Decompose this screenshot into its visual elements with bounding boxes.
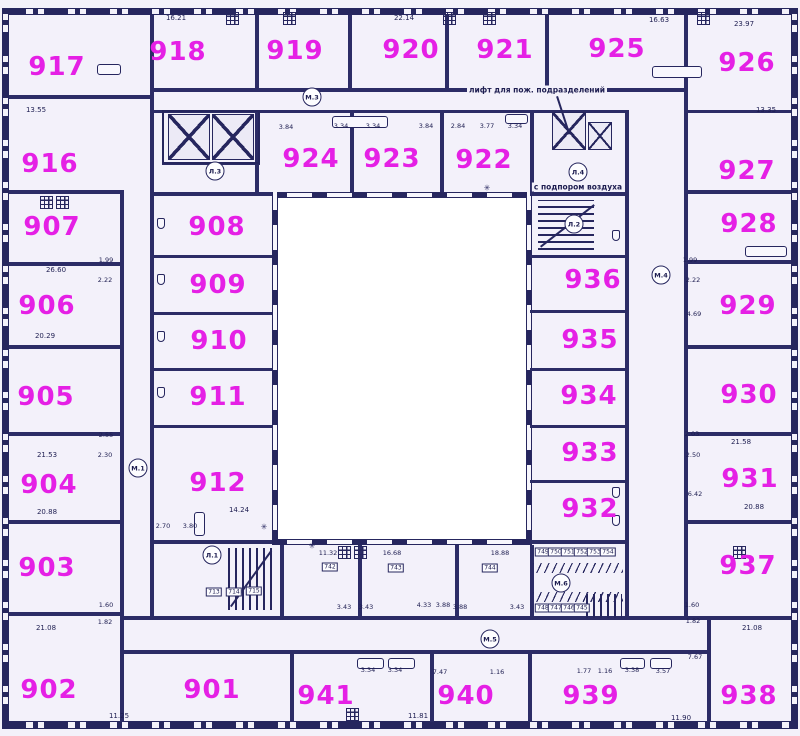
wall: [530, 192, 625, 196]
area-label: 21.58: [731, 438, 751, 446]
elevator-shaft: [168, 114, 210, 160]
wall: [150, 425, 272, 428]
wall: [684, 520, 791, 524]
wall: [530, 310, 625, 313]
wall: [150, 192, 272, 196]
area-label: 16.21: [166, 14, 186, 22]
room-number-908: 908: [188, 212, 245, 242]
room-number-916: 916: [21, 149, 78, 179]
wall: [530, 540, 625, 544]
dimension-label: 1.99: [99, 256, 113, 264]
room-number-920: 920: [382, 35, 439, 65]
asterisk-symbol: ✳: [484, 184, 491, 193]
wall: [9, 612, 120, 616]
dimension-label: 6.42: [688, 490, 702, 498]
room-number-935: 935: [561, 325, 618, 355]
room-number-941: 941: [297, 681, 354, 711]
unit-plaque-742: 742: [322, 563, 338, 572]
wall: [9, 95, 150, 99]
room-number-929: 929: [719, 291, 776, 321]
dimension-label: 1.16: [598, 667, 612, 675]
dimension-label: 2.84: [451, 122, 465, 130]
area-label: 16.63: [649, 16, 669, 24]
dimension-label: 1.60: [685, 601, 699, 609]
wall: [430, 650, 434, 722]
dimension-label: 2.22: [98, 276, 112, 284]
wall: [530, 545, 534, 616]
area-label: 11.25: [109, 712, 129, 720]
dimension-label: 3.34: [388, 666, 402, 674]
room-number-909: 909: [189, 270, 246, 300]
wall: [530, 480, 625, 483]
room-number-906: 906: [18, 291, 75, 321]
outer-wall: [791, 8, 798, 728]
marker-М.4: М.4: [652, 266, 671, 285]
dimension-label: 11.32: [319, 549, 338, 557]
wall: [348, 15, 352, 88]
dimension-label: 3.43: [337, 603, 351, 611]
dimension-label: 18.88: [491, 549, 510, 557]
room-number-919: 919: [266, 36, 323, 66]
dimension-label: 1.82: [686, 617, 700, 625]
wall: [707, 616, 711, 722]
dimension-label: 3.34: [334, 122, 348, 130]
area-label: 14.24: [229, 506, 249, 514]
marker-Л.3: Л.3: [206, 162, 225, 181]
area-label: 11.81: [408, 712, 428, 720]
room-number-922: 922: [455, 145, 512, 175]
wall: [255, 15, 259, 88]
dimension-label: 7.47: [433, 668, 447, 676]
dimension-label: 3.34: [508, 122, 522, 130]
wall: [150, 368, 272, 371]
wall: [9, 520, 120, 524]
asterisk-symbol: ✳: [261, 523, 268, 532]
unit-plaque-715: 715: [246, 587, 262, 596]
courtyard-wall: [272, 192, 278, 545]
marker-Л.4: Л.4: [569, 163, 588, 182]
vent-grid: [483, 12, 496, 25]
dimension-label: 3.43: [359, 603, 373, 611]
room-number-911: 911: [189, 382, 246, 412]
inner-courtyard: [278, 198, 526, 539]
toilet: [612, 230, 620, 241]
dimension-label: 3.43: [510, 603, 524, 611]
dimension-label: 3.88: [453, 603, 467, 611]
room-number-917: 917: [28, 52, 85, 82]
vent-grid: [354, 546, 367, 559]
room-number-939: 939: [562, 681, 619, 711]
dimension-label: 3.57: [656, 667, 670, 675]
wall: [530, 368, 625, 371]
wall: [280, 545, 284, 616]
wall: [684, 260, 791, 264]
wall: [9, 190, 120, 194]
room-number-910: 910: [190, 326, 247, 356]
wall: [528, 650, 532, 722]
vent-grid: [283, 12, 296, 25]
elevator-shaft: [588, 122, 612, 150]
room-number-934: 934: [560, 381, 617, 411]
room-number-927: 927: [718, 156, 775, 186]
dimension-label: 2.50: [686, 451, 700, 459]
room-number-905: 905: [17, 382, 74, 412]
dimension-label: 3.84: [419, 122, 433, 130]
room-number-921: 921: [476, 35, 533, 65]
wall: [150, 255, 272, 258]
unit-plaque-743: 743: [388, 564, 404, 573]
dimension-label: 7.67: [688, 653, 702, 661]
room-number-932: 932: [561, 494, 618, 524]
dimension-label: 1.77: [577, 667, 591, 675]
fire-elevator-annotation: лифт для пож. подразделений: [467, 86, 607, 95]
marker-М.5: М.5: [481, 630, 500, 649]
wall: [545, 15, 549, 88]
marker-М.1: М.1: [129, 459, 148, 478]
bathtub: [652, 66, 702, 78]
wall: [530, 110, 534, 192]
room-number-902: 902: [20, 675, 77, 705]
dimension-label: 1.16: [490, 668, 504, 676]
wall: [445, 15, 449, 88]
bathtub: [97, 64, 121, 75]
room-number-907: 907: [23, 212, 80, 242]
vent-grid: [40, 196, 53, 209]
room-number-931: 931: [721, 464, 778, 494]
wall: [120, 190, 124, 722]
room-number-912: 912: [189, 468, 246, 498]
staircase: [586, 594, 622, 618]
outer-wall: [2, 8, 9, 728]
dimension-label: 3.80: [183, 522, 197, 530]
dimension-label: 4.33: [417, 601, 431, 609]
area-label: 21.08: [36, 624, 56, 632]
marker-М.6: М.6: [552, 574, 571, 593]
room-number-928: 928: [720, 209, 777, 239]
room-number-904: 904: [20, 470, 77, 500]
area-label: 21.53: [37, 451, 57, 459]
vent-grid: [226, 12, 239, 25]
dimension-label: 2.30: [98, 451, 112, 459]
area-label: 26.60: [46, 266, 66, 274]
area-label: 11.90: [671, 714, 691, 722]
toilet: [157, 274, 165, 285]
marker-М.3: М.3: [303, 88, 322, 107]
wall: [290, 650, 294, 722]
dimension-label: 2.03: [685, 430, 699, 438]
room-number-925: 925: [588, 34, 645, 64]
wall: [684, 432, 791, 436]
room-number-901: 901: [183, 675, 240, 705]
area-label: 13.35: [756, 106, 776, 114]
dimension-label: 3.88: [436, 601, 450, 609]
outer-wall: [2, 721, 798, 729]
dimension-label: 1.60: [99, 601, 113, 609]
dimension-label: 2.70: [156, 522, 170, 530]
room-number-930: 930: [720, 380, 777, 410]
courtyard-wall: [272, 192, 532, 198]
room-number-903: 903: [18, 553, 75, 583]
room-number-936: 936: [564, 265, 621, 295]
wall: [530, 425, 625, 428]
wall: [530, 255, 625, 258]
storage-hatch: [533, 563, 623, 573]
area-label: 20.88: [744, 503, 764, 511]
unit-plaque-754: 754: [600, 548, 616, 557]
vent-grid: [56, 196, 69, 209]
area-label: 22.14: [394, 14, 414, 22]
dimension-label: 3.34: [361, 666, 375, 674]
dimension-label: 1.99: [683, 256, 697, 264]
dimension-label: 3.77: [480, 122, 494, 130]
area-label: 13.55: [26, 106, 46, 114]
area-label: 21.08: [742, 624, 762, 632]
elevator-shaft: [212, 114, 254, 160]
vent-grid: [338, 546, 351, 559]
marker-Л.1: Л.1: [203, 546, 222, 565]
unit-plaque-713: 713: [206, 588, 222, 597]
wall: [684, 345, 791, 349]
room-number-933: 933: [561, 438, 618, 468]
wall: [120, 650, 707, 654]
vent-grid: [697, 12, 710, 25]
dimension-label: 2.55: [99, 431, 113, 439]
toilet: [157, 387, 165, 398]
dimension-label: 1.82: [98, 618, 112, 626]
floor-plan: 9179189199209219259269169249239229279079…: [0, 0, 800, 736]
dimension-label: 3.84: [279, 123, 293, 131]
room-number-937: 937: [719, 551, 776, 581]
bathtub: [745, 246, 787, 257]
unit-plaque-744: 744: [482, 564, 498, 573]
dimension-label: 16.68: [383, 549, 402, 557]
wall: [150, 540, 272, 544]
dimension-label: 2.22: [686, 276, 700, 284]
room-number-926: 926: [718, 48, 775, 78]
room-number-923: 923: [363, 144, 420, 174]
room-number-924: 924: [282, 144, 339, 174]
air-pressure-annotation: с подпором воздуха: [532, 183, 624, 192]
dimension-label: 3.34: [366, 122, 380, 130]
area-label: 20.88: [37, 508, 57, 516]
wall: [440, 110, 444, 192]
area-label: 20.29: [35, 332, 55, 340]
vent-grid: [443, 12, 456, 25]
room-number-938: 938: [720, 681, 777, 711]
asterisk-symbol: ✳: [309, 542, 316, 551]
wall: [150, 312, 272, 315]
toilet: [157, 331, 165, 342]
unit-plaque-714: 714: [226, 588, 242, 597]
wall: [9, 345, 120, 349]
room-number-940: 940: [437, 681, 494, 711]
marker-Л.2: Л.2: [565, 215, 584, 234]
wall: [625, 110, 629, 616]
unit-plaque-745: 745: [574, 604, 590, 613]
toilet: [157, 218, 165, 229]
wall: [684, 190, 791, 194]
room-number-918: 918: [149, 37, 206, 67]
area-label: 23.97: [734, 20, 754, 28]
dimension-label: 4.69: [687, 310, 701, 318]
dimension-label: 3.38: [625, 666, 639, 674]
wall: [150, 15, 154, 616]
